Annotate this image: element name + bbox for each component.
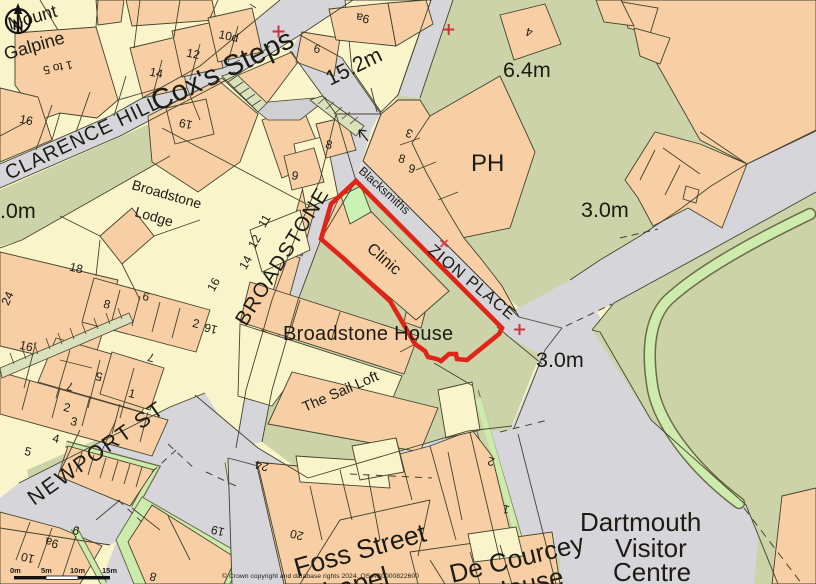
svg-text:PH: PH [471, 150, 504, 177]
svg-text:4.0m: 4.0m [0, 199, 36, 223]
svg-text:Centre: Centre [613, 557, 691, 584]
svg-text:3.0m: 3.0m [536, 348, 584, 372]
svg-text:5m: 5m [41, 566, 52, 575]
svg-text:0m: 0m [10, 566, 21, 575]
svg-text:6.4m: 6.4m [503, 58, 551, 82]
svg-text:Broadstone House: Broadstone House [283, 323, 453, 345]
svg-text:10m: 10m [70, 566, 85, 575]
svg-text:15m: 15m [102, 566, 117, 575]
svg-text:3.0m: 3.0m [581, 198, 629, 222]
